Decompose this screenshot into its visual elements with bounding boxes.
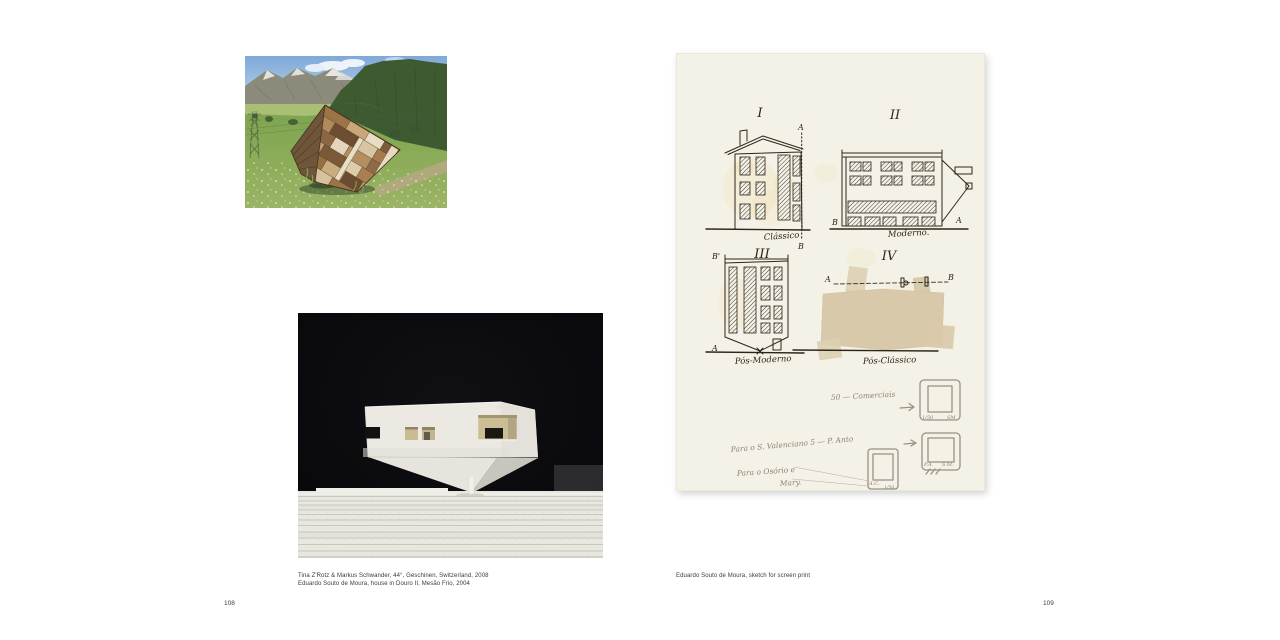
page-number-right: 109: [1043, 600, 1054, 607]
terraced-base: [298, 491, 603, 558]
model-window-notch: [365, 427, 380, 439]
plinth-ledge: [316, 488, 448, 493]
svg-text:Mary.: Mary.: [779, 478, 802, 489]
page-number-left: 108: [224, 600, 235, 607]
model-window-large: [478, 415, 517, 440]
model-windows-middle: [405, 427, 435, 440]
caption-line-1: Eduardo Souto de Moura, sketch for scree…: [676, 572, 996, 580]
svg-text:A: A: [797, 123, 804, 132]
background-gray-patch: [554, 465, 603, 492]
sketch-paper: [676, 53, 985, 491]
svg-text:I: I: [756, 106, 763, 121]
caption-line-2: Eduardo Souto de Moura, house in Douro I…: [298, 580, 618, 588]
model-photo-art: [298, 313, 603, 558]
svg-text:B: B: [797, 242, 804, 251]
model-photo: [298, 313, 603, 558]
sketch-artwork: I A B Clássico II: [676, 53, 985, 491]
book-spread: I A B Clássico II: [0, 0, 1280, 640]
svg-text:A: A: [824, 275, 831, 284]
sketch-art: I A B Clássico II: [676, 53, 985, 491]
svg-text:Pós-Clássico: Pós-Clássico: [862, 354, 917, 367]
svg-text:B: B: [831, 218, 838, 227]
svg-text:II: II: [889, 108, 901, 123]
svg-text:SM: SM: [947, 415, 956, 421]
svg-text:1/50: 1/50: [884, 485, 894, 491]
svg-text:S.M.: S.M.: [942, 462, 954, 468]
svg-text:B': B': [711, 252, 720, 261]
svg-text:A: A: [955, 216, 962, 225]
caption-line-1: Tina Z'Rotz & Markus Schwander, 44°, Ges…: [298, 572, 618, 580]
svg-text:IV: IV: [881, 249, 898, 264]
svg-text:A.C.: A.C.: [868, 481, 880, 487]
svg-text:1/50: 1/50: [922, 415, 934, 421]
svg-text:P.A.: P.A.: [923, 462, 934, 468]
alpine-cube-photo: [245, 56, 447, 208]
left-caption: Tina Z'Rotz & Markus Schwander, 44°, Ges…: [298, 572, 618, 589]
svg-text:B: B: [947, 273, 954, 282]
right-caption: Eduardo Souto de Moura, sketch for scree…: [676, 572, 996, 580]
alpine-photo-art: [245, 56, 447, 208]
svg-text:III: III: [753, 247, 770, 262]
